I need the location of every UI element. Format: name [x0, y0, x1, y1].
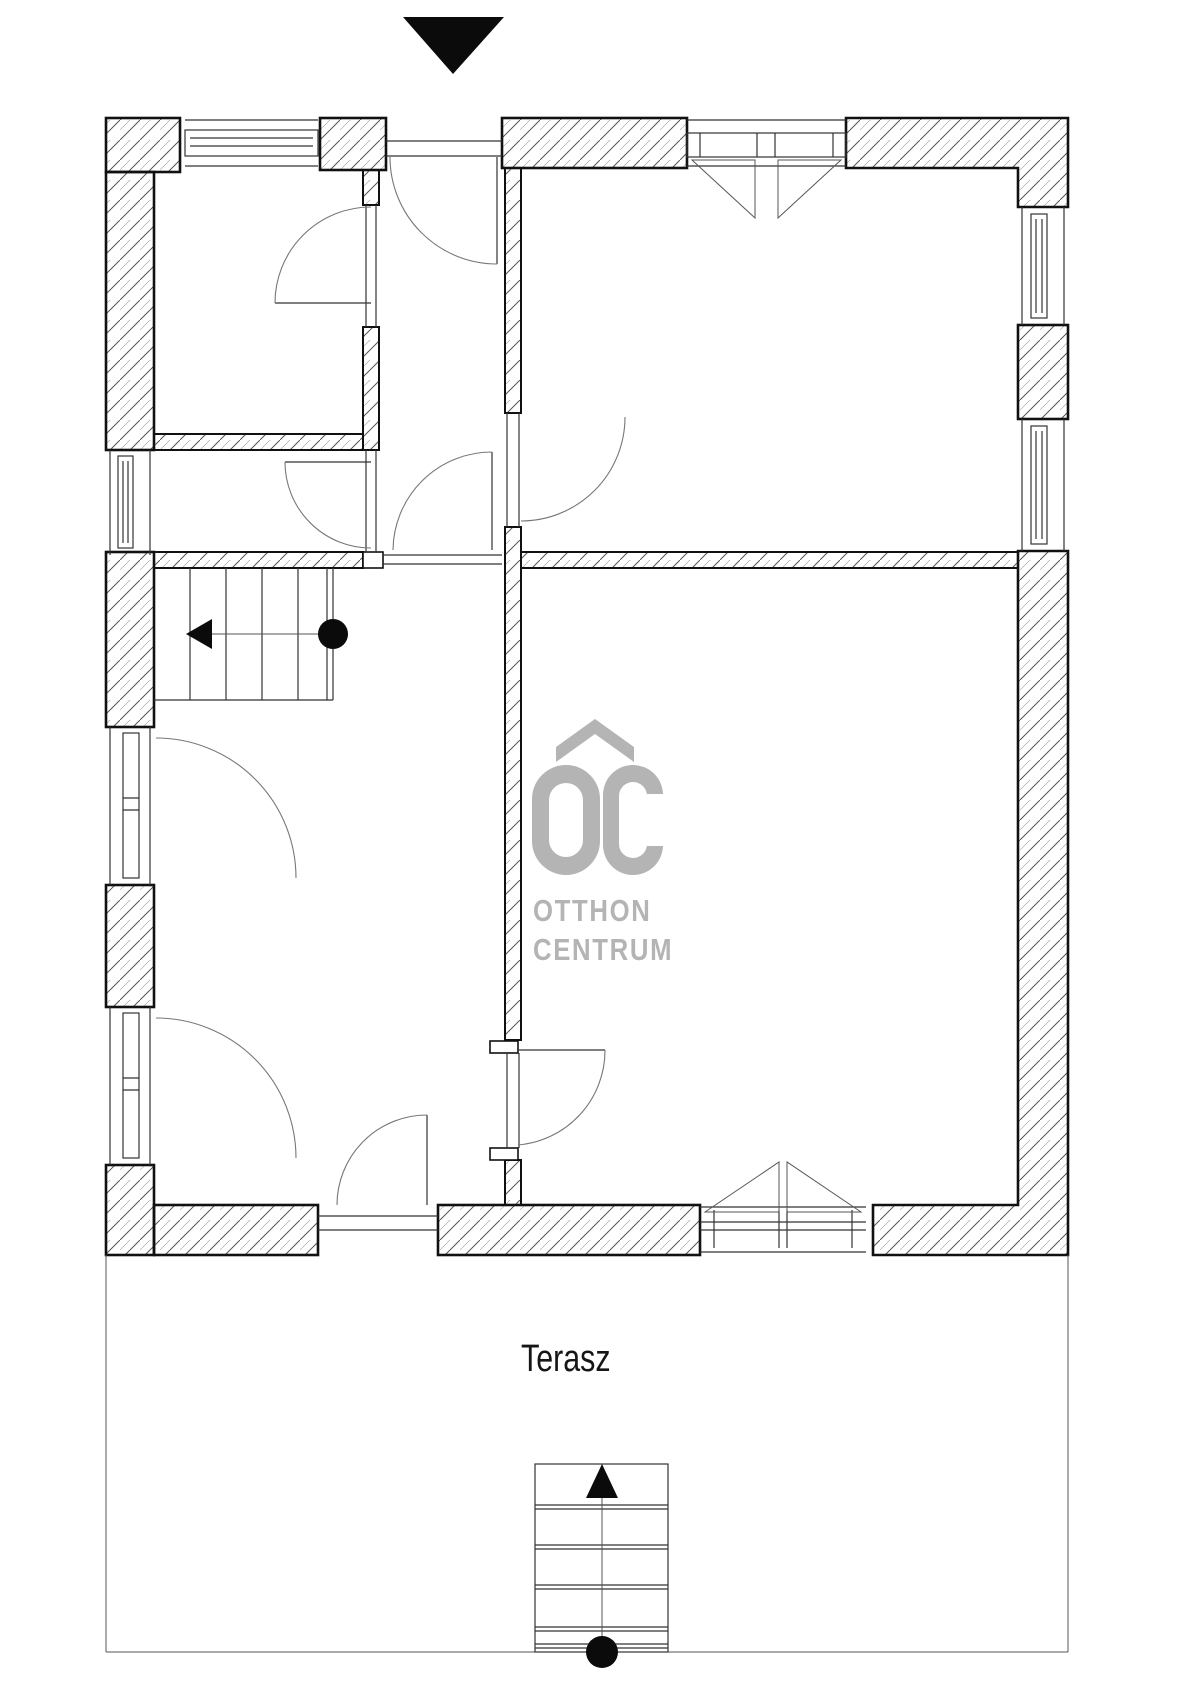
- door-entrance: [386, 141, 502, 264]
- wall-bottom-middle-section: [438, 1205, 700, 1255]
- door-hall-to-stair-room: [383, 452, 502, 564]
- terrace: Terasz: [106, 1255, 1068, 1668]
- wall-corridor-bottom: [154, 552, 363, 568]
- wall-left-pier: [106, 885, 154, 1007]
- stair-interior: [154, 568, 348, 700]
- window-top-casement: [687, 120, 846, 218]
- wall-horizontal-east: [521, 552, 1018, 568]
- wall-room1-right-upper: [363, 170, 379, 205]
- stair-terrace: [535, 1464, 668, 1668]
- door-left-lower-glazed: [110, 1007, 296, 1165]
- wall-right-and-bottom-right: [873, 551, 1068, 1255]
- door-hall-to-right-room: [507, 413, 625, 527]
- watermark: OTTHON CENTRUM: [532, 719, 673, 968]
- doors: [110, 141, 625, 1230]
- window-top-left: [185, 120, 318, 166]
- exterior-walls: [106, 118, 1068, 1255]
- wall-end-cap: [490, 1041, 518, 1053]
- wall-center-vertical-stub: [505, 1160, 521, 1205]
- wall-center-vertical-upper: [505, 168, 521, 413]
- oc-logo-icon: [532, 719, 666, 875]
- wall-end-cap: [490, 1148, 518, 1160]
- wall-center-vertical-lower: [505, 527, 521, 1040]
- floor-plan-drawing: Terasz OTTHON CENTRUM: [0, 0, 1190, 1684]
- door-room1: [275, 205, 376, 327]
- wall-right-between-windows: [1018, 325, 1068, 419]
- door-lower-rooms: [507, 1050, 605, 1148]
- windows: [110, 120, 1064, 1252]
- wall-top-middle: [502, 118, 687, 168]
- window-right-lower: [1022, 419, 1064, 551]
- wall-room1-bottom: [154, 434, 363, 450]
- window-right-upper: [1022, 207, 1064, 325]
- wall-bottom-left-corner: [106, 1165, 154, 1255]
- wall-left-upper: [106, 172, 154, 450]
- watermark-line2: CENTRUM: [533, 933, 673, 968]
- door-terrace: [318, 1115, 438, 1230]
- floor-plan-page: Terasz OTTHON CENTRUM: [0, 0, 1190, 1684]
- wall-top-pier: [320, 118, 386, 170]
- wall-end-cap: [363, 552, 383, 568]
- wall-left-middle: [106, 552, 154, 727]
- watermark-line1: OTTHON: [533, 894, 652, 929]
- stair-up-arrow-icon: [586, 1464, 618, 1498]
- stair-end-dot-icon: [586, 1636, 618, 1668]
- window-left-corridor: [110, 450, 150, 555]
- stair-start-dot-icon: [318, 619, 348, 649]
- wall-top-right-corner: [846, 118, 1068, 207]
- wall-top-left-corner: [106, 118, 180, 172]
- door-left-upper-glazed: [110, 727, 296, 885]
- wall-room1-right-lower: [363, 327, 379, 450]
- door-corridor: [285, 450, 376, 552]
- north-arrow-icon: [403, 17, 504, 74]
- window-bottom-casement: [700, 1162, 866, 1252]
- wall-bottom-left-section: [154, 1205, 318, 1255]
- terrace-label: Terasz: [521, 1338, 611, 1380]
